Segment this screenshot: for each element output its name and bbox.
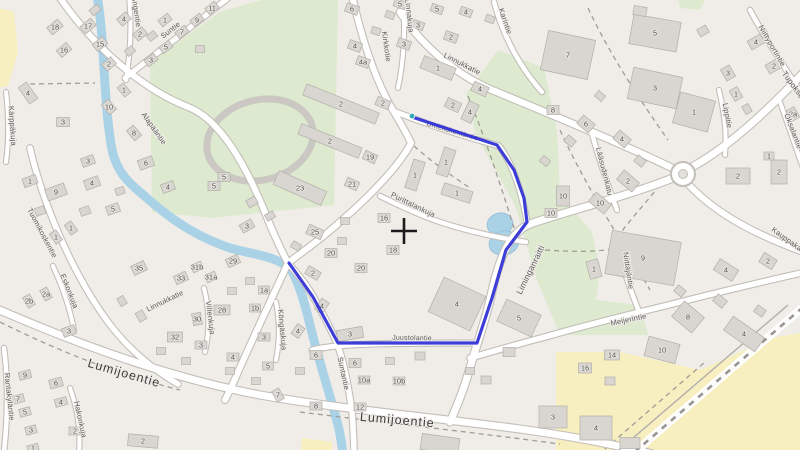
building-number-label: 4 — [353, 42, 357, 51]
building-number-label: 3 — [245, 222, 249, 231]
building — [633, 5, 647, 16]
building-number-label: 9 — [641, 254, 645, 263]
building-number-label: 6 — [584, 120, 588, 129]
building-number-label: 32 — [171, 333, 179, 342]
building-number-label: 1 — [163, 16, 167, 25]
building-number-label: 6 — [353, 359, 357, 368]
building-number-label: 2 — [141, 437, 145, 446]
building-number-label: 4 — [464, 8, 468, 17]
building-number-label: 10a — [358, 376, 371, 385]
building-number-label: 4a — [359, 58, 368, 67]
building-number-label: 1 — [28, 177, 32, 186]
building-number-label: 7 — [180, 28, 184, 37]
junction-layer — [671, 162, 695, 186]
building — [503, 348, 515, 357]
building — [196, 46, 205, 53]
building-number-label: 15 — [96, 40, 104, 49]
building — [157, 348, 166, 355]
building — [386, 358, 395, 365]
building-number-label: 5 — [653, 29, 657, 38]
building-number-label: 4 — [594, 424, 598, 433]
building-number-label: 1b — [251, 304, 259, 313]
building-number-label: 25 — [311, 228, 319, 237]
building-number-label: 16 — [380, 214, 388, 223]
building-number-label: 1 — [31, 444, 35, 450]
building-number-label: 19 — [366, 153, 374, 162]
building-number-label: 4 — [166, 183, 170, 192]
building-number-label: 7 — [16, 395, 20, 404]
building-number-label: 5 — [111, 205, 115, 214]
building-number-label: 20 — [357, 264, 365, 273]
building-number-label: 5 — [517, 314, 521, 323]
building-number-label: 1 — [734, 90, 738, 99]
building-number-label: 3 — [551, 413, 555, 422]
building-number-label: 3 — [67, 327, 71, 336]
building-number-label: 18 — [389, 246, 397, 255]
building-number-label: 5 — [23, 408, 27, 417]
building-number-label: 2 — [73, 427, 77, 436]
building-number-label: 1 — [69, 224, 73, 233]
building-number-label: 3 — [416, 21, 420, 30]
building-number-label: 2b — [25, 297, 33, 306]
building-number-label: 3 — [199, 341, 203, 350]
building — [252, 378, 261, 385]
building-number-label: 5 — [222, 173, 226, 182]
building-number-label: 7 — [566, 51, 570, 60]
building — [182, 358, 191, 365]
building-number-label: 1 — [767, 152, 771, 161]
building-number-label: 30 — [193, 315, 201, 324]
building-number-label: 2 — [736, 172, 740, 181]
building-number-label: 4 — [122, 15, 126, 24]
building-number-label: 6 — [54, 379, 58, 388]
building-number-label: 5 — [212, 182, 216, 191]
building-number-label: 2 — [381, 99, 385, 108]
building-number-label: 28 — [218, 306, 226, 315]
building-number-label: 4 — [231, 353, 235, 362]
building — [481, 376, 491, 384]
building-number-label: 4 — [754, 38, 758, 47]
building-number-label: 14 — [608, 351, 616, 360]
building-number-label: 31a — [205, 273, 218, 282]
building-number-label: 3 — [726, 69, 730, 78]
building-number-label: 1 — [692, 108, 696, 117]
building — [226, 368, 235, 375]
building-number-label: 4 — [26, 89, 30, 98]
building-number-label: 29 — [229, 257, 237, 266]
building-number-label: 9 — [54, 188, 58, 197]
building-number-label: 6 — [314, 351, 318, 360]
building-number-label: 5 — [164, 43, 168, 52]
building-number-label: 9 — [195, 16, 199, 25]
building-number-label: 9 — [23, 371, 27, 380]
roundabout-island — [679, 170, 688, 179]
building-number-label: 2 — [328, 137, 332, 146]
building-number-label: 4 — [90, 179, 94, 188]
building-number-label: 31b — [191, 263, 204, 272]
building — [228, 288, 237, 295]
building-number-label: 2 — [766, 257, 770, 266]
building-number-label: 10 — [596, 199, 604, 208]
building-number-label: 10 — [658, 346, 666, 355]
building-number-label: 2 — [451, 101, 455, 110]
building-number-label: 10b — [393, 377, 406, 386]
building-number-label: 2 — [449, 33, 453, 42]
building-number-label: 1a — [260, 286, 269, 295]
building-number-label: 17 — [84, 22, 92, 31]
building-number-label: 3 — [402, 40, 406, 49]
building-number-label: 1 — [436, 64, 440, 73]
building-number-label: 4 — [296, 327, 300, 336]
building-number-label: 8 — [314, 402, 318, 411]
building-number-label: 2 — [311, 269, 315, 278]
building-number-label: 10 — [559, 192, 567, 201]
building-number-label: 3 — [262, 333, 266, 342]
building-number-label: 2 — [107, 60, 111, 69]
building-number-label: 4 — [742, 330, 746, 339]
building-number-label: 16 — [581, 364, 589, 373]
building-number-label: 1 — [455, 189, 459, 198]
building-number-label: 3 — [149, 56, 153, 65]
building-number-label: 4 — [620, 135, 624, 144]
building-number-label: 6 — [144, 159, 148, 168]
building-number-label: 5 — [398, 0, 402, 9]
map-canvas[interactable]: 1817161542213579111108346553444a32122223… — [0, 0, 800, 450]
street-name-label: Juustolantie — [392, 335, 432, 343]
building-number-label: 7 — [276, 391, 280, 400]
building-number-label: 10 — [547, 209, 555, 218]
building-number-label: 18 — [51, 23, 59, 32]
building-number-label: 3 — [653, 84, 657, 93]
building-number-label: 4 — [478, 85, 482, 94]
building-number-label: 1 — [54, 233, 58, 242]
building — [466, 368, 475, 375]
building-number-label: 3 — [61, 118, 65, 127]
map-viewport[interactable]: 1817161542213579111108346553444a32122223… — [0, 0, 800, 450]
building-number-label: 1 — [592, 265, 596, 274]
building-number-label: 33 — [177, 274, 185, 283]
route-start-marker[interactable] — [409, 113, 415, 119]
road — [6, 92, 8, 162]
building-number-label: 11 — [208, 4, 216, 13]
building — [296, 368, 305, 375]
building-number-label: 2 — [777, 168, 781, 177]
building-number-label: 5 — [435, 5, 439, 14]
building-number-label: 2 — [772, 62, 776, 71]
building-number-label: 2 — [626, 177, 630, 186]
building-number-label: 35 — [135, 264, 143, 273]
building — [605, 377, 615, 385]
building-number-label: 23 — [296, 184, 304, 193]
building-number-label: 4 — [468, 108, 472, 117]
building-number-label: 5 — [266, 362, 270, 371]
building — [415, 352, 425, 360]
building-number-label: 3 — [29, 426, 33, 435]
building-number-label: 8 — [132, 129, 136, 138]
building-number-label: 10 — [105, 103, 113, 112]
building-number-label: 4 — [59, 398, 63, 407]
building-number-label: 1 — [444, 158, 448, 167]
building — [620, 438, 640, 449]
building-number-label: 3 — [86, 157, 90, 166]
building-number-label: 6 — [350, 5, 354, 14]
building-number-label: 2a — [42, 290, 51, 299]
building-number-label: 8 — [551, 106, 555, 115]
building-number-label: 8 — [686, 313, 690, 322]
building-number-label: 1 — [413, 171, 417, 180]
building — [341, 218, 350, 225]
building-number-label: 4 — [455, 300, 459, 309]
building — [338, 238, 347, 245]
building-number-label: 3 — [348, 330, 352, 339]
building-number-label: 16 — [60, 46, 68, 55]
building-number-label: 4 — [724, 266, 728, 275]
building-number-label: 2 — [138, 30, 142, 39]
building-number-label: 20 — [327, 249, 335, 258]
building-number-label: 2 — [339, 100, 343, 109]
building-number-label: 21 — [348, 180, 356, 189]
building — [246, 278, 255, 285]
building-number-label: 1 — [122, 86, 126, 95]
